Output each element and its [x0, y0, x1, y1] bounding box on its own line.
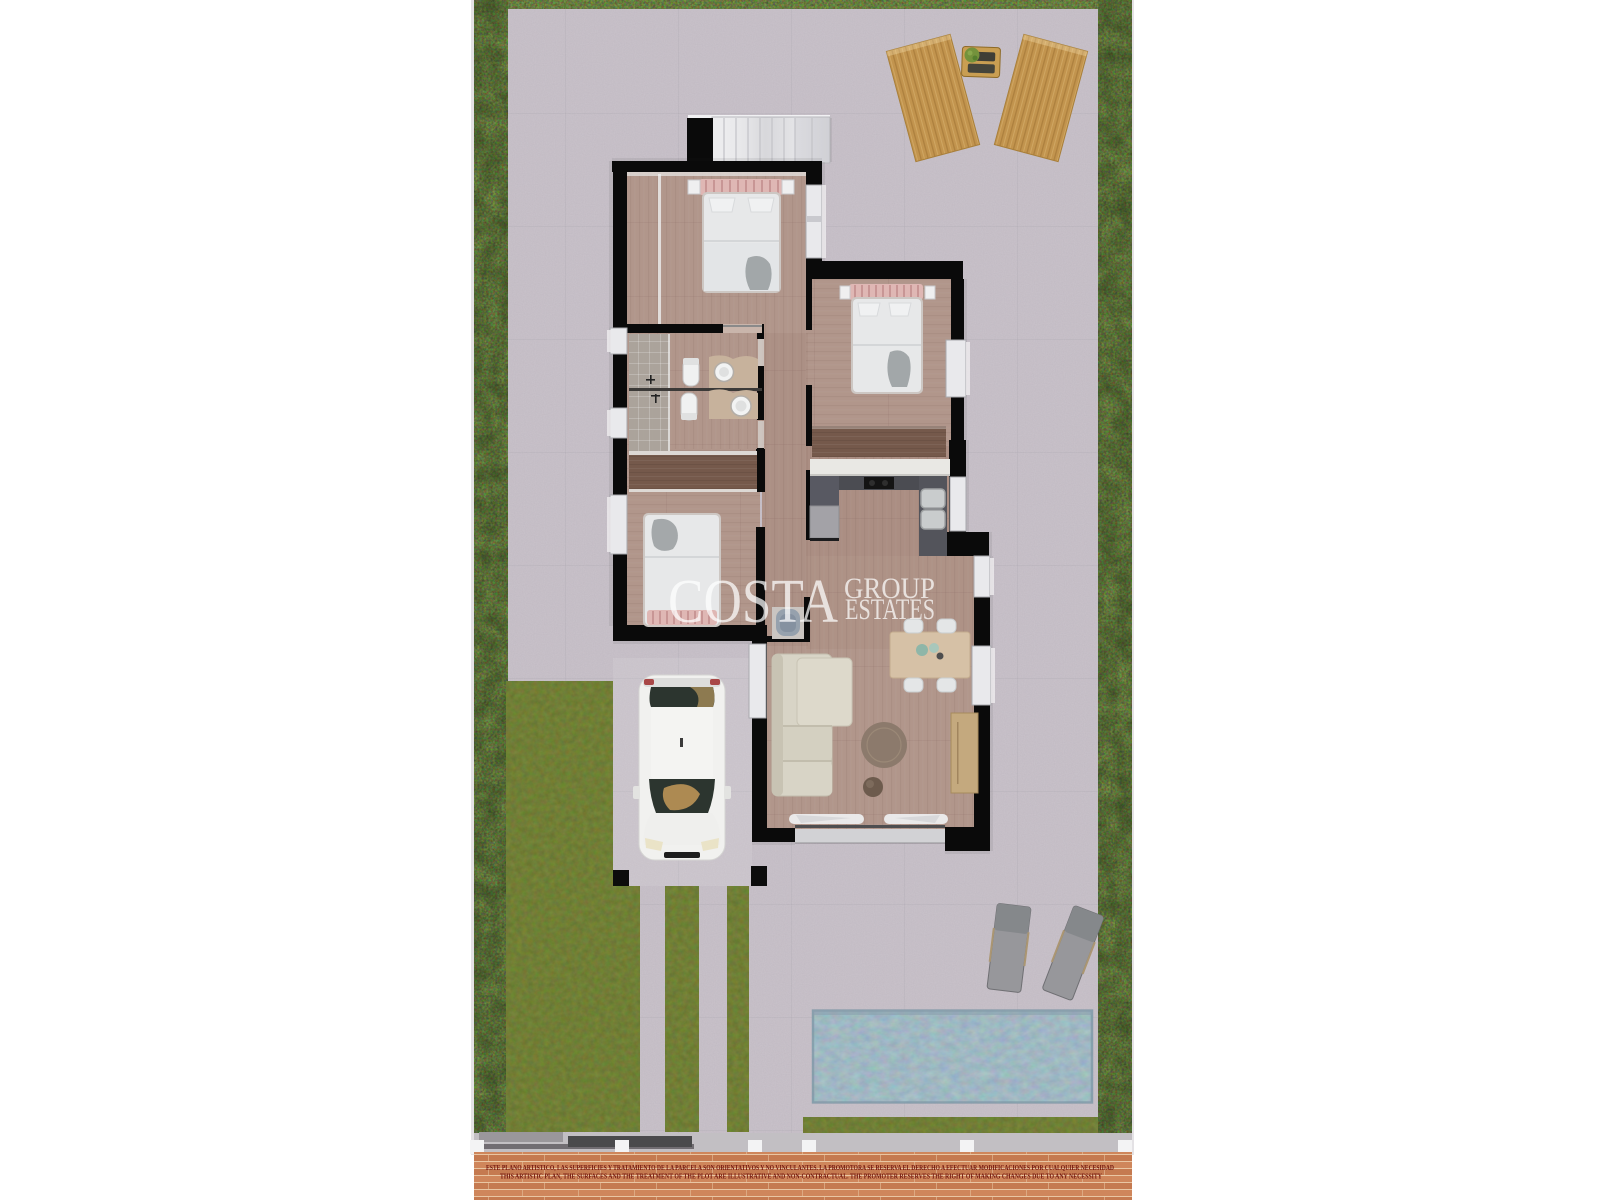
svg-text:COSTA: COSTA — [668, 568, 838, 636]
svg-text:ESTE PLANO ARTISTICO, LAS SUPE: ESTE PLANO ARTISTICO, LAS SUPERFICIES Y … — [486, 1164, 1114, 1172]
svg-text:THIS ARTISTIC PLAN, THE SURFAC: THIS ARTISTIC PLAN, THE SURFACES AND THE… — [500, 1172, 1103, 1180]
svg-text:ESTATES: ESTATES — [845, 593, 935, 626]
